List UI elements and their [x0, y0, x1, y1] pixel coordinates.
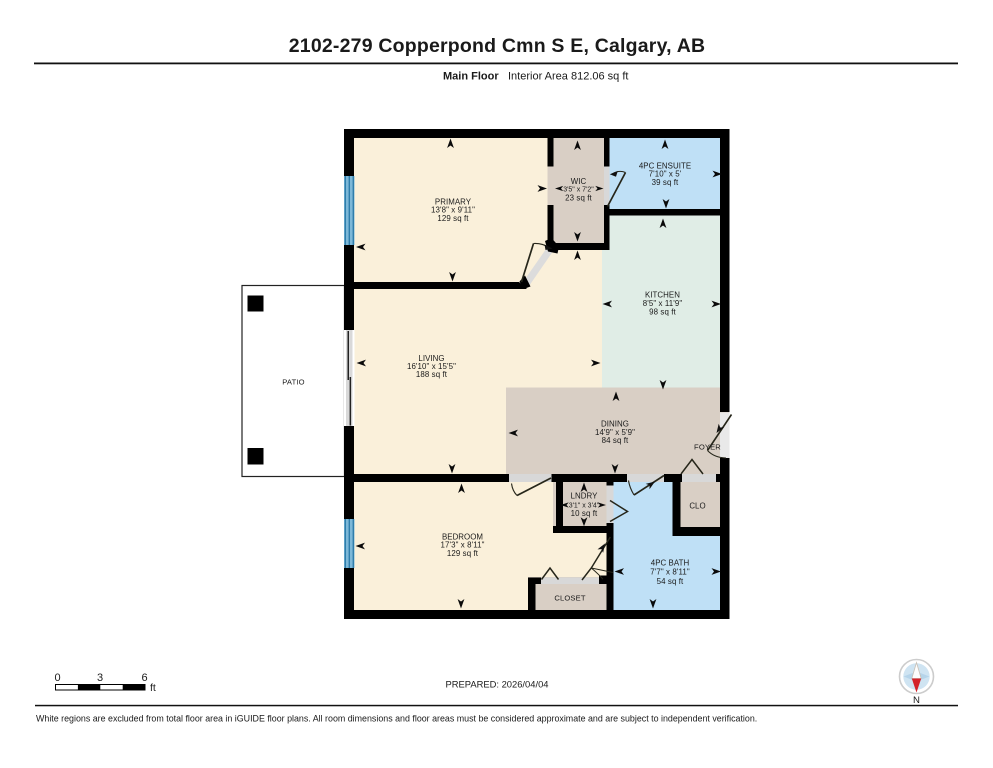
svg-text:WIC: WIC: [571, 177, 587, 186]
svg-text:6: 6: [141, 672, 147, 684]
svg-text:Main Floor: Main Floor: [443, 71, 499, 83]
svg-text:0: 0: [54, 672, 60, 684]
svg-text:54 sq ft: 54 sq ft: [657, 577, 684, 586]
svg-text:White regions are excluded fro: White regions are excluded from total fl…: [36, 714, 757, 724]
svg-text:LNDRY: LNDRY: [571, 492, 599, 501]
svg-text:ft: ft: [150, 682, 156, 694]
svg-text:7'7" x 8'11": 7'7" x 8'11": [650, 567, 690, 576]
svg-text:39 sq ft: 39 sq ft: [652, 178, 679, 187]
svg-text:98 sq ft: 98 sq ft: [649, 307, 676, 316]
svg-text:FOYER: FOYER: [694, 442, 721, 451]
svg-text:3: 3: [97, 672, 103, 684]
svg-text:CLO: CLO: [689, 502, 705, 511]
svg-text:Interior Area 812.06 sq ft: Interior Area 812.06 sq ft: [508, 71, 628, 83]
svg-text:129 sq ft: 129 sq ft: [437, 214, 469, 223]
svg-text:10 sq ft: 10 sq ft: [571, 509, 598, 518]
svg-text:PATIO: PATIO: [282, 378, 304, 387]
svg-text:CLOSET: CLOSET: [554, 593, 585, 602]
svg-text:N: N: [913, 695, 920, 706]
svg-text:2102-279 Copperpond Cmn S E, C: 2102-279 Copperpond Cmn S E, Calgary, AB: [289, 35, 706, 57]
svg-text:129 sq ft: 129 sq ft: [447, 549, 479, 558]
svg-text:4PC BATH: 4PC BATH: [651, 559, 690, 568]
svg-text:23 sq ft: 23 sq ft: [565, 193, 592, 202]
svg-text:188 sq ft: 188 sq ft: [416, 370, 448, 379]
svg-text:PREPARED: 2026/04/04: PREPARED: 2026/04/04: [445, 679, 548, 690]
svg-text:3'5" x 7'2": 3'5" x 7'2": [563, 186, 594, 193]
svg-text:84 sq ft: 84 sq ft: [602, 436, 629, 445]
